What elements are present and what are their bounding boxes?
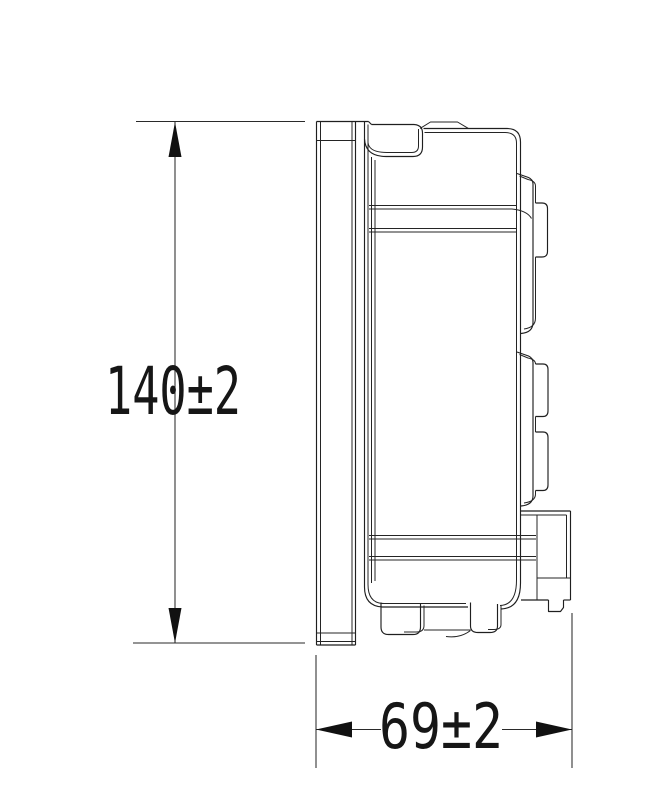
foot-outline <box>471 603 498 633</box>
dimension-arrow-right-icon <box>536 722 572 738</box>
body-top-edge <box>424 129 521 144</box>
clip-pad <box>536 432 549 491</box>
bottom-left-inner-fillet <box>368 585 384 604</box>
seam-line <box>369 209 532 219</box>
dimension-arrow-left-icon <box>316 722 352 738</box>
bottom-far-edge-line <box>446 631 471 637</box>
body-wall <box>365 122 376 588</box>
bottom-feet <box>365 580 521 637</box>
connector-foot <box>549 600 564 612</box>
height-dimension-label: 140±2 <box>105 353 241 430</box>
top-outer-edge <box>424 129 521 143</box>
body-right-edge <box>517 142 521 583</box>
wall-top-step <box>369 122 372 125</box>
cap-bottom-edge <box>365 139 414 157</box>
bottom-connector <box>521 511 571 612</box>
depth-dimension-label: 69±2 <box>379 690 503 763</box>
top-cap <box>365 122 469 157</box>
dimension-arrow-down-icon <box>169 608 182 643</box>
dimension-arrow-up-icon <box>169 122 182 157</box>
clip-pad <box>536 364 549 417</box>
clip-arm-outline <box>517 174 533 334</box>
dimension-height: 140±2 <box>105 122 305 644</box>
mounting-clip-lower <box>517 352 548 506</box>
clip-arm-inner-line <box>524 257 536 329</box>
foot-inner-line <box>488 605 501 630</box>
clip-pad <box>536 203 548 257</box>
dimension-depth: 69±2 <box>316 613 572 768</box>
front-bezel <box>317 122 369 646</box>
cap-right-inner-edge <box>412 129 419 153</box>
cap-bottom-inner-edge <box>368 143 412 153</box>
clip-arm-inner-line <box>524 491 536 504</box>
technical-drawing-canvas: 140±2 69±2 <box>0 0 649 789</box>
parting-lines <box>369 206 536 561</box>
top-lip-sliver <box>420 122 469 129</box>
top-inner-edge <box>425 133 517 144</box>
bottom-right-inner-fillet <box>500 580 517 606</box>
clip-arm-outline <box>517 352 533 506</box>
drawing-page: 140±2 69±2 <box>0 0 649 789</box>
mounting-clip-upper <box>517 174 548 334</box>
